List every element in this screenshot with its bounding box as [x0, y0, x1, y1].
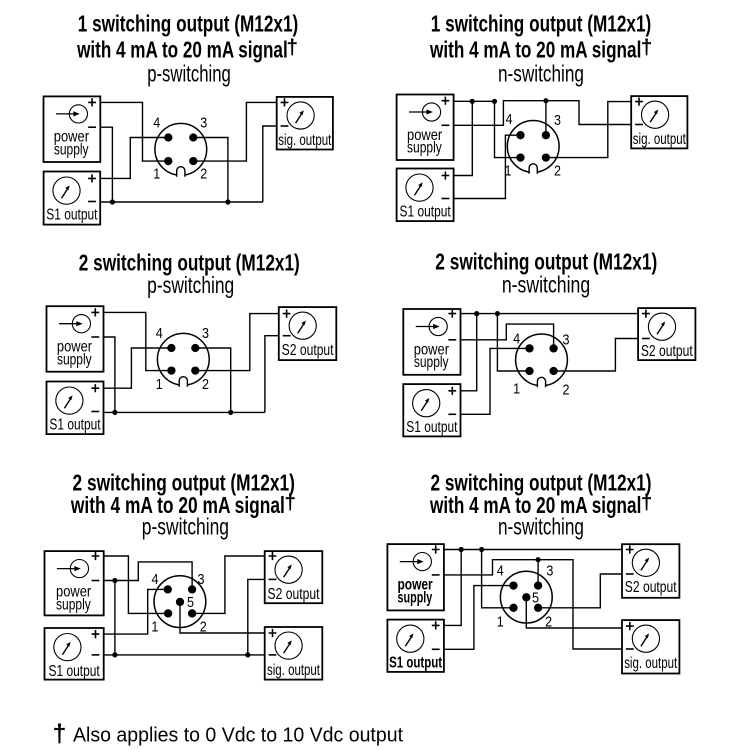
svg-text:1 switching output (M12x1): 1 switching output (M12x1) [78, 11, 299, 37]
svg-text:supply: supply [56, 596, 91, 613]
svg-text:sig. output: sig. output [633, 131, 686, 148]
svg-text:S1 output: S1 output [49, 663, 101, 680]
svg-text:1: 1 [151, 620, 158, 636]
svg-text:†: † [286, 36, 298, 59]
svg-text:S2 output: S2 output [268, 586, 320, 603]
svg-text:1 switching output (M12x1): 1 switching output (M12x1) [431, 11, 652, 37]
svg-text:2: 2 [554, 164, 561, 180]
svg-text:with 4 mA to 20 mA signal: with 4 mA to 20 mA signal [76, 37, 287, 63]
svg-text:sig. output: sig. output [278, 132, 331, 149]
svg-text:sig. output: sig. output [267, 662, 320, 679]
svg-text:S1 output: S1 output [46, 206, 98, 223]
svg-text:1: 1 [156, 377, 163, 393]
svg-text:supply: supply [398, 589, 433, 606]
svg-text:sig. output: sig. output [624, 655, 677, 672]
svg-text:supply: supply [57, 351, 92, 368]
svg-text:4: 4 [152, 572, 159, 588]
svg-text:4: 4 [497, 564, 504, 580]
svg-text:p-switching: p-switching [147, 272, 234, 298]
svg-text:S1 output: S1 output [400, 203, 452, 220]
svg-text:S1 output: S1 output [389, 655, 442, 672]
svg-text:1: 1 [505, 164, 512, 180]
svg-text:3: 3 [198, 572, 205, 588]
svg-text:4: 4 [513, 332, 520, 348]
svg-text:2: 2 [202, 377, 209, 393]
svg-text:3: 3 [546, 564, 553, 580]
svg-text:with 4 mA to 20 mA signal: with 4 mA to 20 mA signal [429, 37, 641, 63]
svg-text:S2 output: S2 output [625, 579, 677, 596]
svg-text:1: 1 [513, 382, 520, 398]
svg-text:supply: supply [414, 354, 449, 371]
svg-text:2: 2 [200, 167, 207, 183]
svg-text:3: 3 [554, 113, 561, 129]
svg-text:n-switching: n-switching [498, 514, 584, 540]
svg-text:S2 output: S2 output [282, 342, 334, 359]
svg-text:4: 4 [506, 112, 513, 128]
svg-text:p-switching: p-switching [142, 514, 229, 540]
svg-text:†: † [641, 491, 653, 514]
svg-text:S2 output: S2 output [641, 343, 693, 360]
svg-text:2: 2 [545, 615, 552, 631]
svg-text:supply: supply [54, 142, 89, 159]
svg-text:3: 3 [563, 333, 570, 349]
svg-text:2 switching output (M12x1): 2 switching output (M12x1) [435, 248, 657, 274]
svg-text:3: 3 [200, 115, 207, 131]
svg-text:2: 2 [563, 383, 570, 399]
svg-text:4: 4 [156, 326, 163, 342]
svg-text:5: 5 [187, 595, 194, 611]
svg-text:3: 3 [202, 326, 209, 342]
svg-text:Also applies to 0 Vdc to 10 Vd: Also applies to 0 Vdc to 10 Vdc output [73, 724, 403, 747]
svg-text:S1 output: S1 output [49, 416, 101, 433]
svg-text:supply: supply [407, 140, 442, 157]
svg-text:p-switching: p-switching [147, 61, 231, 87]
svg-text:4: 4 [153, 115, 160, 131]
svg-text:1: 1 [497, 615, 504, 631]
svg-text:1: 1 [153, 167, 160, 183]
svg-text:2: 2 [200, 620, 207, 636]
svg-text:†: † [53, 720, 67, 748]
svg-text:†: † [641, 36, 653, 59]
svg-text:n-switching: n-switching [502, 272, 590, 298]
svg-text:5: 5 [532, 590, 539, 606]
svg-text:†: † [284, 491, 296, 514]
svg-text:S1 output: S1 output [406, 419, 458, 436]
svg-text:n-switching: n-switching [498, 61, 584, 87]
